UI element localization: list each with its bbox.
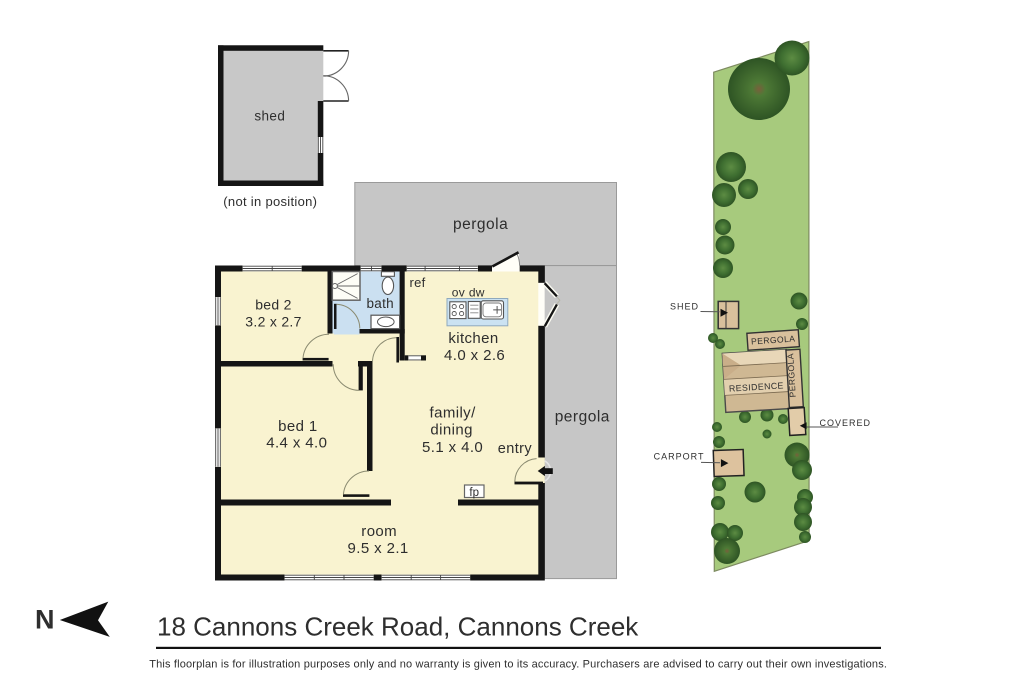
svg-text:pergola: pergola [555, 409, 610, 426]
svg-text:fp: fp [469, 487, 479, 499]
svg-text:CARPORT: CARPORT [654, 452, 705, 462]
svg-text:SHED: SHED [670, 302, 699, 312]
svg-text:family/: family/ [430, 405, 477, 422]
svg-text:3.2 x 2.7: 3.2 x 2.7 [245, 314, 301, 330]
svg-text:4.4 x 4.0: 4.4 x 4.0 [266, 435, 327, 452]
svg-text:ref: ref [410, 275, 426, 290]
svg-text:9.5 x 2.1: 9.5 x 2.1 [348, 540, 409, 557]
svg-text:bath: bath [366, 296, 393, 311]
svg-text:5.1 x 4.0: 5.1 x 4.0 [422, 439, 483, 456]
svg-text:18 Cannons Creek Road, Cannons: 18 Cannons Creek Road, Cannons Creek [157, 612, 639, 642]
svg-text:dw: dw [469, 286, 485, 300]
svg-text:shed: shed [254, 109, 285, 124]
svg-text:pergola: pergola [453, 216, 508, 233]
svg-text:ov: ov [452, 286, 465, 300]
svg-text:4.0 x 2.6: 4.0 x 2.6 [444, 347, 505, 364]
svg-text:This floorplan is for illustra: This floorplan is for illustration purpo… [149, 659, 887, 671]
svg-text:dining: dining [430, 422, 472, 439]
svg-text:N: N [35, 605, 55, 635]
svg-text:kitchen: kitchen [448, 330, 498, 347]
svg-text:COVERED: COVERED [820, 418, 872, 428]
svg-text:entry: entry [498, 441, 533, 457]
svg-text:bed 1: bed 1 [278, 418, 318, 435]
svg-text:(not in position): (not in position) [223, 194, 317, 209]
svg-text:room: room [361, 523, 397, 540]
svg-text:bed 2: bed 2 [255, 297, 292, 313]
